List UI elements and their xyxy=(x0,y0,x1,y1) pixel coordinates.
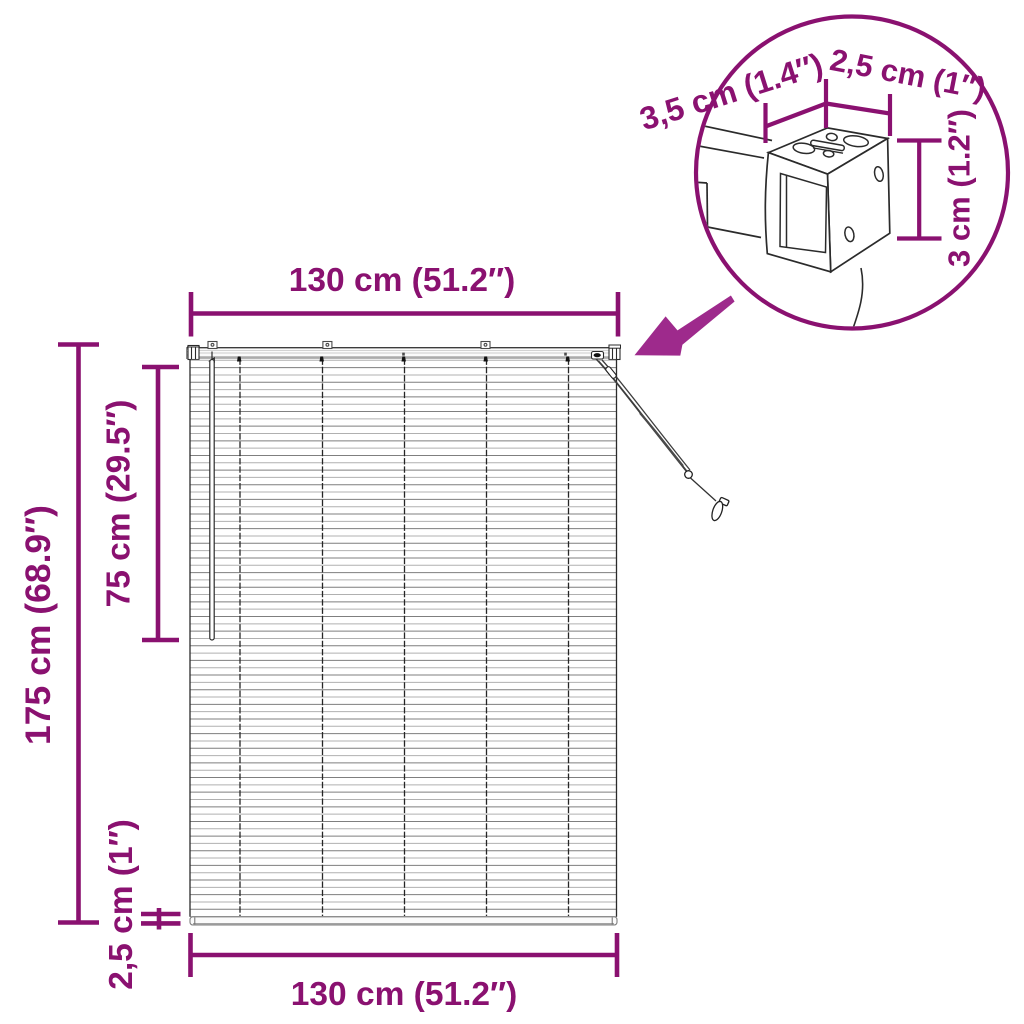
svg-text:130 cm (51.2″): 130 cm (51.2″) xyxy=(289,262,516,299)
svg-text:2,5 cm (1″): 2,5 cm (1″) xyxy=(103,819,140,990)
svg-text:75 cm (29.5″): 75 cm (29.5″) xyxy=(101,400,138,608)
svg-text:130 cm (51.2″): 130 cm (51.2″) xyxy=(291,976,518,1013)
svg-text:175 cm (68.9″): 175 cm (68.9″) xyxy=(18,505,58,745)
svg-text:3 cm (1.2″): 3 cm (1.2″) xyxy=(942,109,977,267)
